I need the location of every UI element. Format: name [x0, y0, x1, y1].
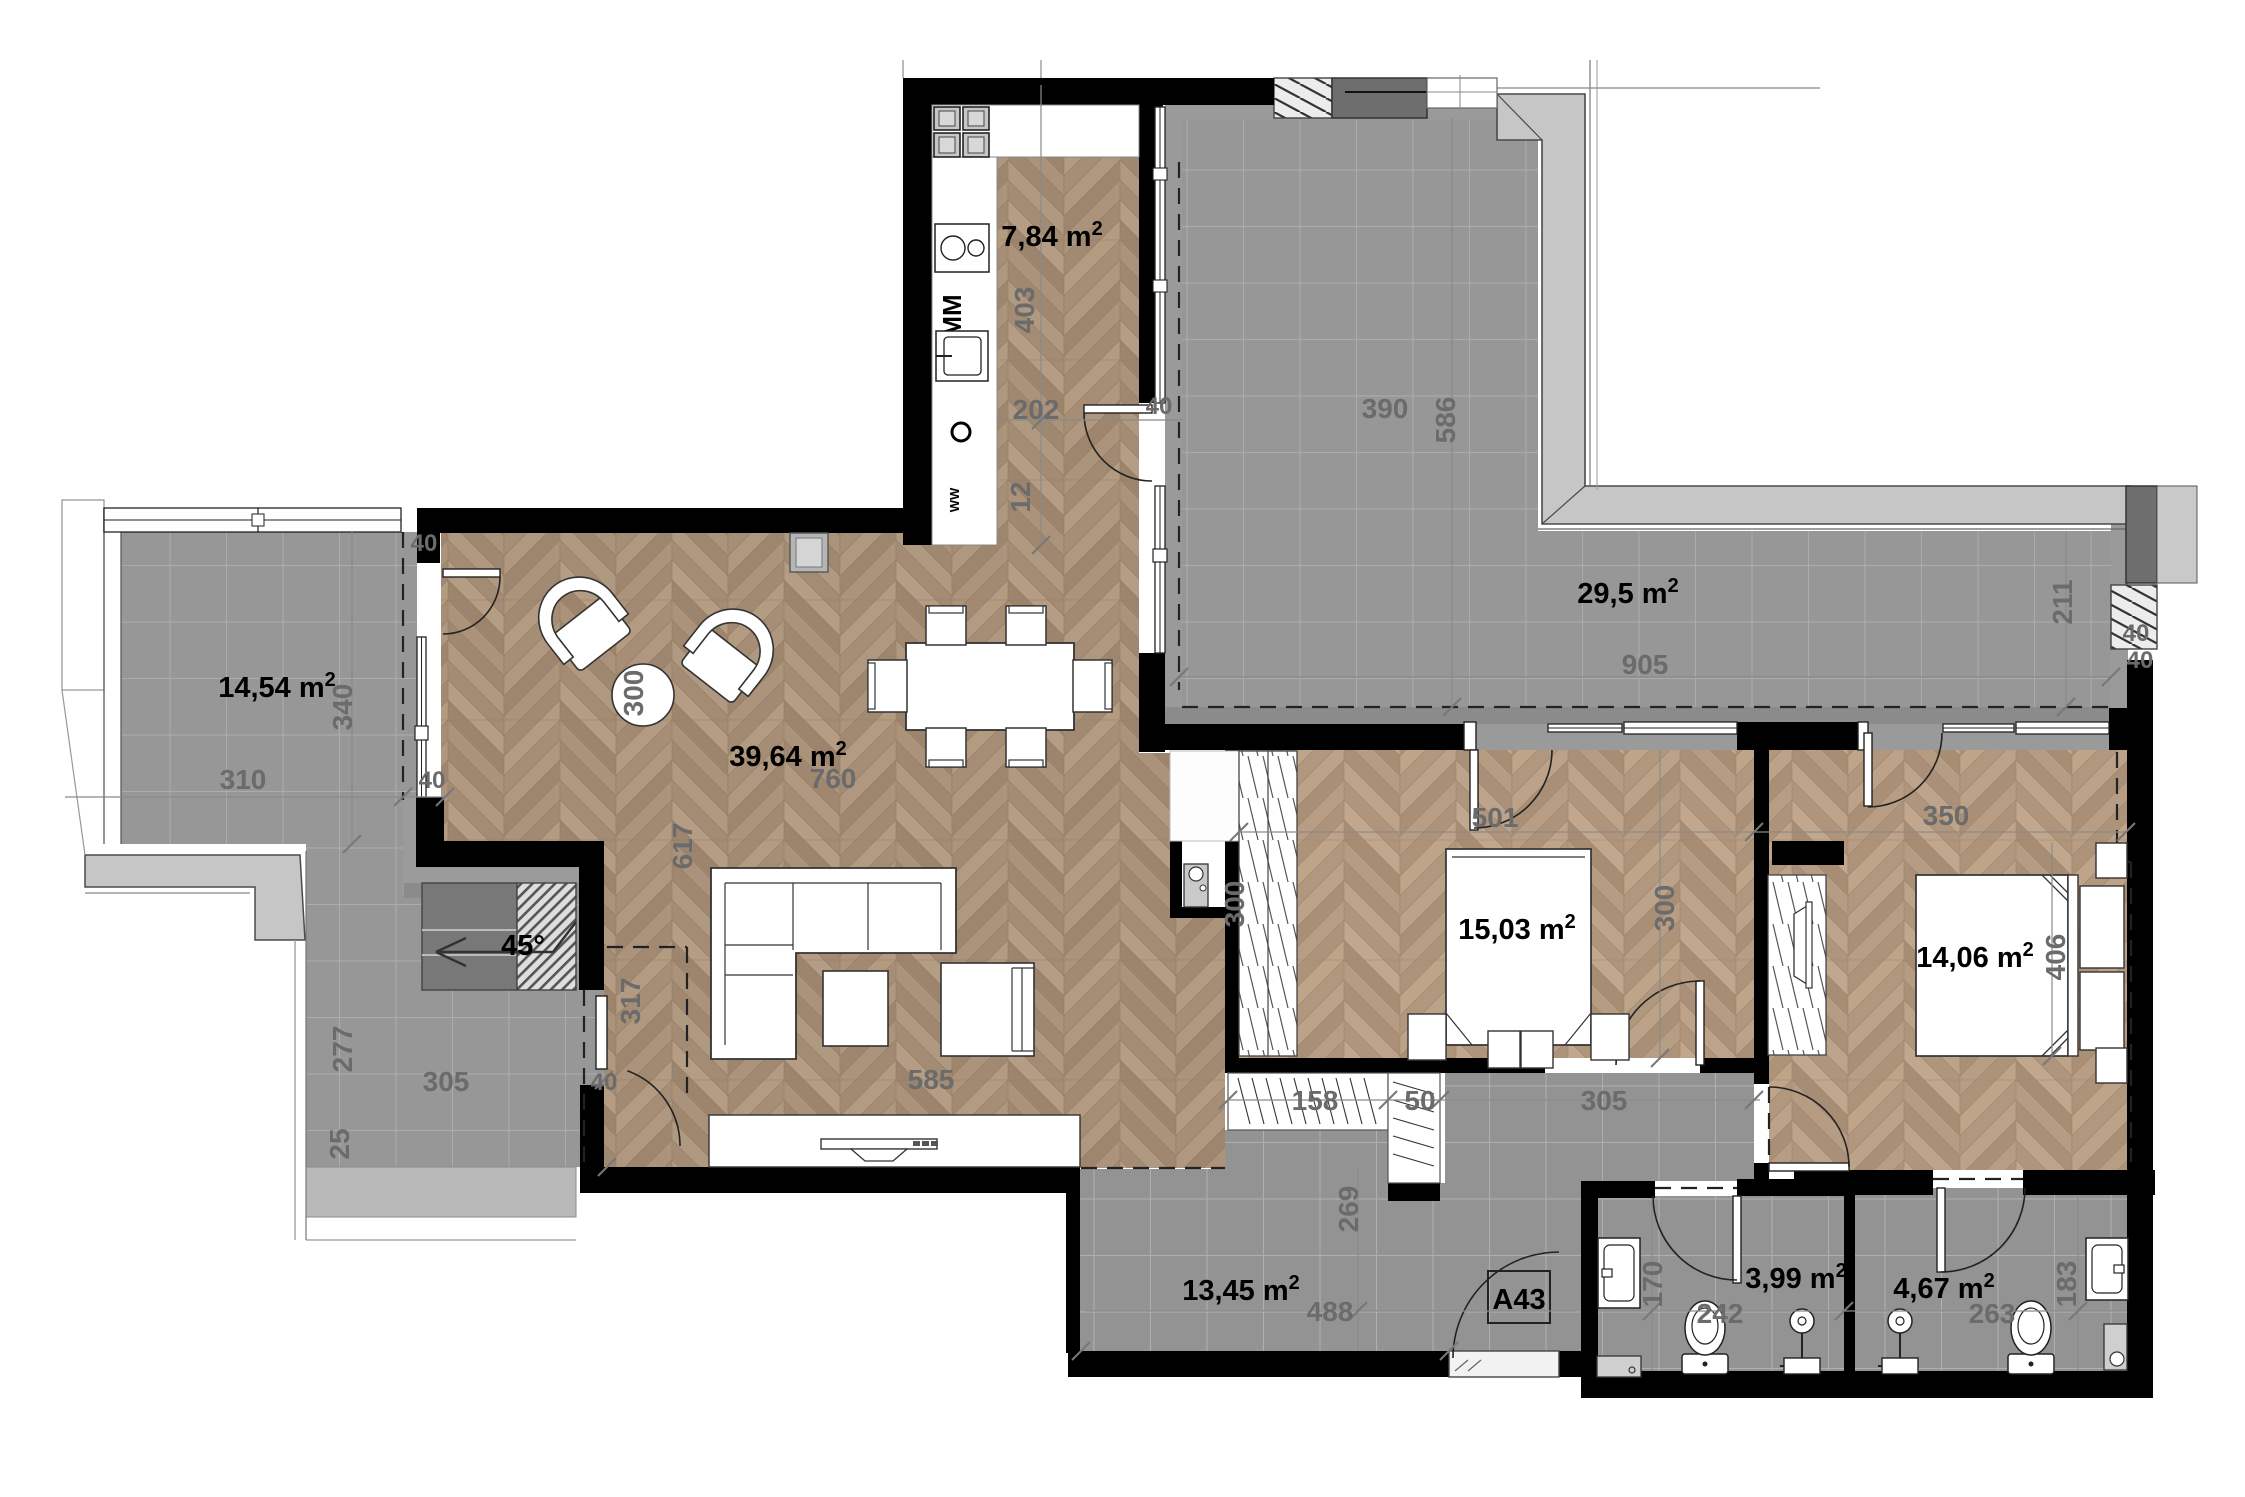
svg-text:WW: WW — [947, 487, 962, 512]
svg-text:501: 501 — [1472, 802, 1519, 833]
svg-text:158: 158 — [1292, 1085, 1339, 1116]
svg-text:310: 310 — [220, 764, 267, 795]
svg-text:40: 40 — [2127, 647, 2154, 674]
svg-text:403: 403 — [1009, 287, 1040, 334]
svg-text:617: 617 — [667, 823, 698, 870]
svg-text:586: 586 — [1430, 397, 1461, 444]
svg-text:390: 390 — [1362, 393, 1409, 424]
svg-text:25: 25 — [324, 1128, 355, 1159]
svg-text:40: 40 — [1146, 393, 1173, 420]
svg-text:305: 305 — [1581, 1085, 1628, 1116]
svg-text:305: 305 — [423, 1066, 470, 1097]
svg-text:269: 269 — [1333, 1186, 1364, 1233]
svg-text:12: 12 — [1005, 481, 1036, 512]
svg-text:14,54 m2: 14,54 m2 — [218, 669, 336, 704]
svg-text:585: 585 — [908, 1064, 955, 1095]
svg-text:15,03 m2: 15,03 m2 — [1458, 911, 1576, 946]
svg-text:40: 40 — [411, 530, 438, 557]
svg-text:340: 340 — [327, 684, 358, 731]
svg-text:242: 242 — [1697, 1298, 1744, 1329]
svg-text:202: 202 — [1013, 394, 1060, 425]
svg-text:7,84 m2: 7,84 m2 — [1001, 218, 1102, 253]
svg-text:277: 277 — [327, 1026, 358, 1073]
svg-text:170: 170 — [1637, 1261, 1668, 1308]
svg-text:13,45 m2: 13,45 m2 — [1182, 1272, 1300, 1307]
svg-text:406: 406 — [2040, 934, 2071, 981]
svg-text:50: 50 — [1404, 1085, 1435, 1116]
svg-text:3,99 m2: 3,99 m2 — [1745, 1260, 1846, 1295]
svg-text:263: 263 — [1969, 1298, 2016, 1329]
svg-text:14,06 m2: 14,06 m2 — [1916, 939, 2034, 974]
svg-text:300: 300 — [618, 670, 649, 717]
svg-text:45°: 45° — [501, 930, 545, 962]
svg-text:905: 905 — [1622, 649, 1669, 680]
svg-text:183: 183 — [2051, 1261, 2082, 1308]
svg-text:760: 760 — [810, 763, 857, 794]
svg-text:40: 40 — [591, 1069, 618, 1096]
svg-text:40: 40 — [2123, 620, 2150, 647]
svg-text:350: 350 — [1923, 800, 1970, 831]
svg-text:211: 211 — [2047, 579, 2078, 624]
svg-text:29,5 m2: 29,5 m2 — [1577, 575, 1678, 610]
svg-text:40: 40 — [419, 767, 446, 794]
svg-text:488: 488 — [1307, 1296, 1354, 1327]
svg-text:300: 300 — [1219, 881, 1250, 928]
svg-text:300: 300 — [1649, 885, 1680, 932]
svg-text:317: 317 — [615, 978, 646, 1025]
